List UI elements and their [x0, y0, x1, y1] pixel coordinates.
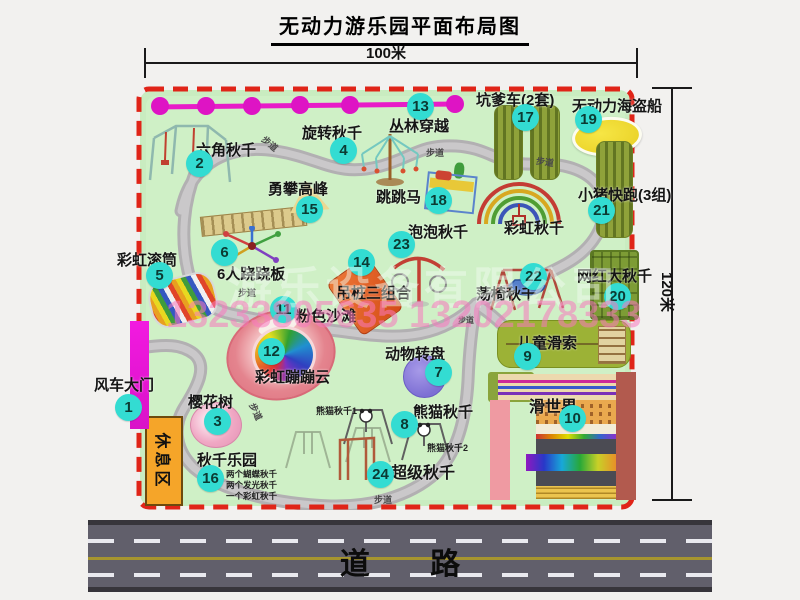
attraction-badge-9: 9 — [514, 343, 541, 370]
path-label-2: 步道 — [426, 146, 444, 159]
attraction-badge-15: 15 — [296, 196, 323, 223]
attraction-badge-24: 24 — [367, 461, 394, 488]
attraction-label-18: 跳跳马 — [376, 186, 421, 207]
attraction-badge-2: 2 — [186, 150, 213, 177]
attraction-badge-10: 10 — [559, 405, 586, 432]
attraction-badge-16: 16 — [197, 465, 224, 492]
rainbow-swing-label: 彩虹秋千 — [504, 217, 564, 238]
height-dimension-label: 120米 — [657, 272, 678, 312]
path-label-6: 步道 — [374, 493, 392, 506]
attraction-label-6: 6人跷跷板 — [217, 263, 285, 284]
attraction-label-8: 熊猫秋千 — [413, 401, 473, 422]
path-label-3: 步道 — [535, 154, 555, 169]
attraction-badge-20: 20 — [604, 283, 631, 310]
attraction-badge-18: 18 — [425, 187, 452, 214]
swing-park-note-3: 一个彩虹秋千 — [226, 490, 277, 502]
attraction-badge-1: 1 — [115, 394, 142, 421]
road: 道 路 — [88, 520, 712, 592]
width-dimension-label: 100米 — [366, 42, 406, 63]
attraction-badge-14: 14 — [348, 249, 375, 276]
attraction-label-14: 吊桩三组合 — [336, 282, 411, 303]
attraction-label-23: 泡泡秋千 — [408, 221, 468, 242]
attraction-label-12: 彩虹蹦蹦云 — [255, 366, 330, 387]
path-label-7: 步道 — [458, 315, 474, 326]
attraction-label-4: 旋转秋千 — [302, 122, 362, 143]
attraction-label-24: 超级秋千 — [391, 459, 455, 483]
attraction-badge-8: 8 — [391, 411, 418, 438]
panda-swing-1-label: 熊猫秋千1 — [316, 404, 357, 417]
attraction-label-11: 粉色沙滩 — [296, 305, 356, 326]
attraction-badge-6: 6 — [211, 239, 238, 266]
slide-world-icon — [488, 372, 636, 502]
attraction-label-15: 勇攀高峰 — [268, 178, 328, 199]
attraction-badge-13: 13 — [407, 93, 434, 120]
attraction-label-1: 风车大门 — [94, 374, 154, 395]
road-label: 道 路 — [88, 539, 712, 583]
attraction-badge-19: 19 — [575, 106, 602, 133]
ladder-icon — [598, 326, 626, 364]
attraction-badge-5: 5 — [146, 262, 173, 289]
attraction-badge-4: 4 — [330, 137, 357, 164]
path-label-4: 步道 — [238, 286, 256, 299]
attraction-badge-12: 12 — [258, 338, 285, 365]
rest-area-label: 休息区 — [152, 432, 176, 489]
attraction-badge-17: 17 — [512, 104, 539, 131]
rest-area: 休息区 — [145, 416, 183, 506]
park-map: 无动力游乐园平面布局图 100米 120米 — [0, 0, 800, 600]
panda-swing-2-label: 熊猫秋千2 — [427, 441, 468, 454]
page-title: 无动力游乐园平面布局图 — [271, 10, 529, 46]
attraction-badge-21: 21 — [588, 197, 615, 224]
attraction-badge-22: 22 — [520, 263, 547, 290]
attraction-badge-7: 7 — [425, 359, 452, 386]
attraction-badge-23: 23 — [388, 231, 415, 258]
attraction-badge-3: 3 — [204, 408, 231, 435]
attraction-badge-11: 11 — [270, 296, 297, 323]
